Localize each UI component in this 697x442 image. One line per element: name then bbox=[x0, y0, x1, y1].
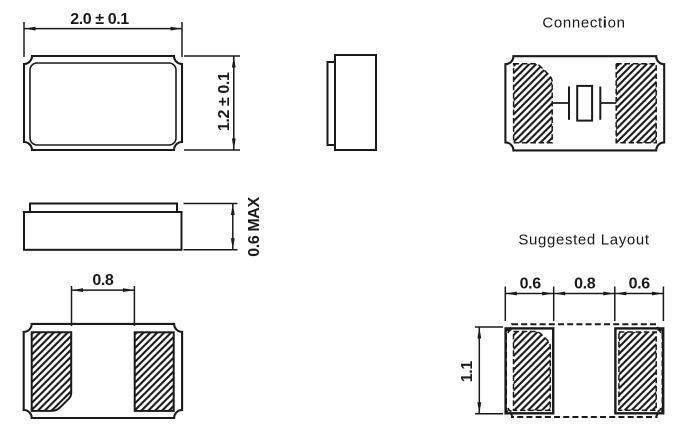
svg-text:0.6: 0.6 bbox=[629, 276, 651, 293]
svg-text:1.2 ± 0.1: 1.2 ± 0.1 bbox=[216, 72, 233, 131]
svg-text:2.0 ± 0.1: 2.0 ± 0.1 bbox=[70, 11, 129, 28]
svg-text:Suggested Layout: Suggested Layout bbox=[518, 232, 650, 249]
svg-text:0.8: 0.8 bbox=[574, 276, 596, 293]
svg-text:0.8: 0.8 bbox=[92, 272, 114, 289]
svg-text:1.1: 1.1 bbox=[459, 361, 476, 383]
svg-text:0.6 MAX: 0.6 MAX bbox=[246, 197, 263, 257]
svg-text:Connection: Connection bbox=[542, 15, 625, 32]
svg-text:0.6: 0.6 bbox=[520, 276, 542, 293]
